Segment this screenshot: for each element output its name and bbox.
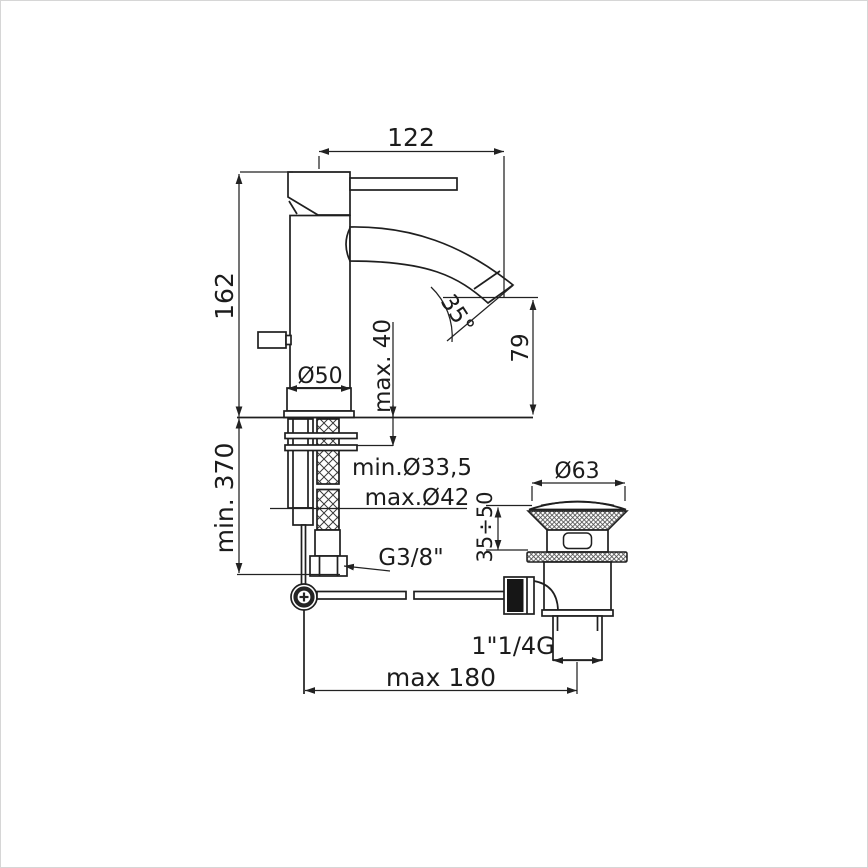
hose-nut xyxy=(310,556,347,576)
dim-base-diameter-label: Ø50 xyxy=(297,364,342,389)
faucet-column xyxy=(290,216,350,389)
lever-handle xyxy=(350,178,457,190)
dim-max-hole-label: max.Ø42 xyxy=(365,485,470,511)
supply-thread-label: G3/8" xyxy=(378,545,443,571)
stud-end-block xyxy=(293,508,313,525)
side-knob xyxy=(258,332,286,348)
waste-clamp-range-label: 35÷50 xyxy=(473,491,497,562)
head-joint-line xyxy=(289,201,297,214)
waste-cap-diameter-label: Ø63 xyxy=(554,459,599,484)
max-rod-reach-label: max 180 xyxy=(386,663,496,692)
spout-outline xyxy=(350,227,513,303)
dim-spout-reach-label: 122 xyxy=(387,123,435,152)
waste-thread-label: 1"1/4G xyxy=(471,632,555,660)
side-knob-stem xyxy=(286,336,291,345)
flex-hose-lower xyxy=(317,490,339,531)
dim-deck-thickness-label: max. 40 xyxy=(370,319,396,413)
waste-body-lip xyxy=(542,610,613,616)
drawing-sheet: 122 162 min. 370 max. 40 79 35° Ø50 min.… xyxy=(0,0,868,868)
hose-ferrule xyxy=(315,530,340,556)
base-cylinder xyxy=(287,388,351,411)
mounting-washer-bottom xyxy=(285,445,357,451)
horizontal-rod-segment-1 xyxy=(317,592,406,600)
flex-hose-upper xyxy=(317,419,339,484)
dim-supply-length-label: min. 370 xyxy=(210,443,239,554)
waste-waist-slot xyxy=(564,533,592,549)
pop-up-rod-upper xyxy=(302,525,306,585)
rod-connector-knurl xyxy=(508,580,524,612)
waste-cone xyxy=(528,511,627,530)
waste-body xyxy=(544,562,611,610)
base-plate xyxy=(284,411,354,418)
cartridge-head xyxy=(288,172,350,215)
dim-min-hole-label: min.Ø33,5 xyxy=(352,455,472,481)
faucet-technical-drawing: 122 162 min. 370 max. 40 79 35° Ø50 min.… xyxy=(1,1,867,867)
waste-outlet-thread xyxy=(553,616,602,660)
waste-flange xyxy=(527,552,627,562)
horizontal-rod-segment-2 xyxy=(414,592,505,600)
dim-outlet-height-label: 79 xyxy=(508,333,534,362)
dim-height-label: 162 xyxy=(210,272,239,320)
mounting-washer-top xyxy=(285,433,357,439)
